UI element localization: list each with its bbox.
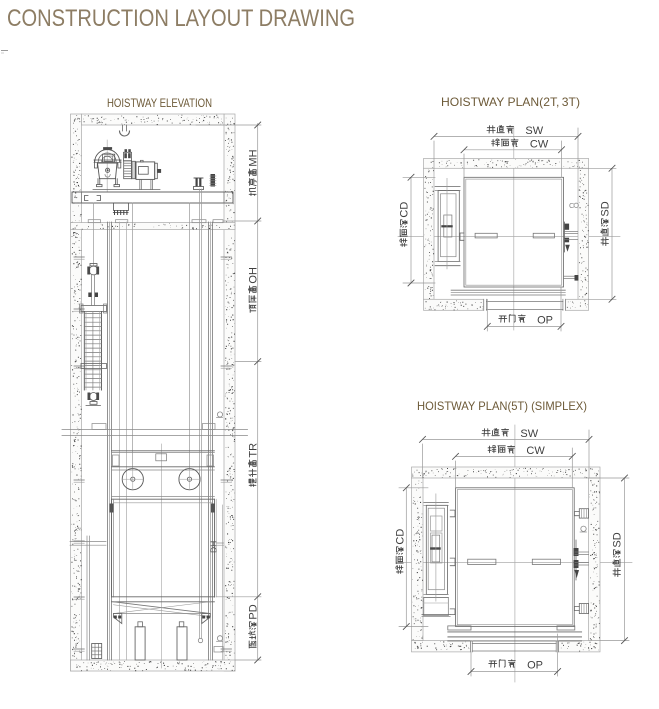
svg-text:CW: CW <box>530 139 549 151</box>
svg-text:HOISTWAY PLAN(5T) (SIMPLEX): HOISTWAY PLAN(5T) (SIMPLEX) <box>417 399 587 413</box>
svg-text:SW: SW <box>525 125 543 137</box>
svg-text:HOISTWAY PLAN(2T, 3T): HOISTWAY PLAN(2T, 3T) <box>441 95 580 109</box>
svg-text:HOISTWAY ELEVATION: HOISTWAY ELEVATION <box>107 96 212 110</box>
svg-text:MH: MH <box>248 149 260 166</box>
svg-text:CD: CD <box>395 529 407 545</box>
svg-text:DH: DH <box>209 541 219 553</box>
svg-text:OP: OP <box>527 659 543 671</box>
svg-text:CW: CW <box>526 445 545 457</box>
svg-text:TR: TR <box>248 443 260 458</box>
svg-text:OP: OP <box>537 314 553 326</box>
svg-text:CD: CD <box>399 202 411 218</box>
svg-text:CONSTRUCTION LAYOUT DRAWING: CONSTRUCTION LAYOUT DRAWING <box>7 5 355 32</box>
svg-text:OH: OH <box>248 267 260 284</box>
svg-text:SW: SW <box>520 428 538 440</box>
svg-text:SD: SD <box>600 201 612 216</box>
svg-text:PD: PD <box>248 604 260 619</box>
svg-text:SD: SD <box>612 532 624 547</box>
